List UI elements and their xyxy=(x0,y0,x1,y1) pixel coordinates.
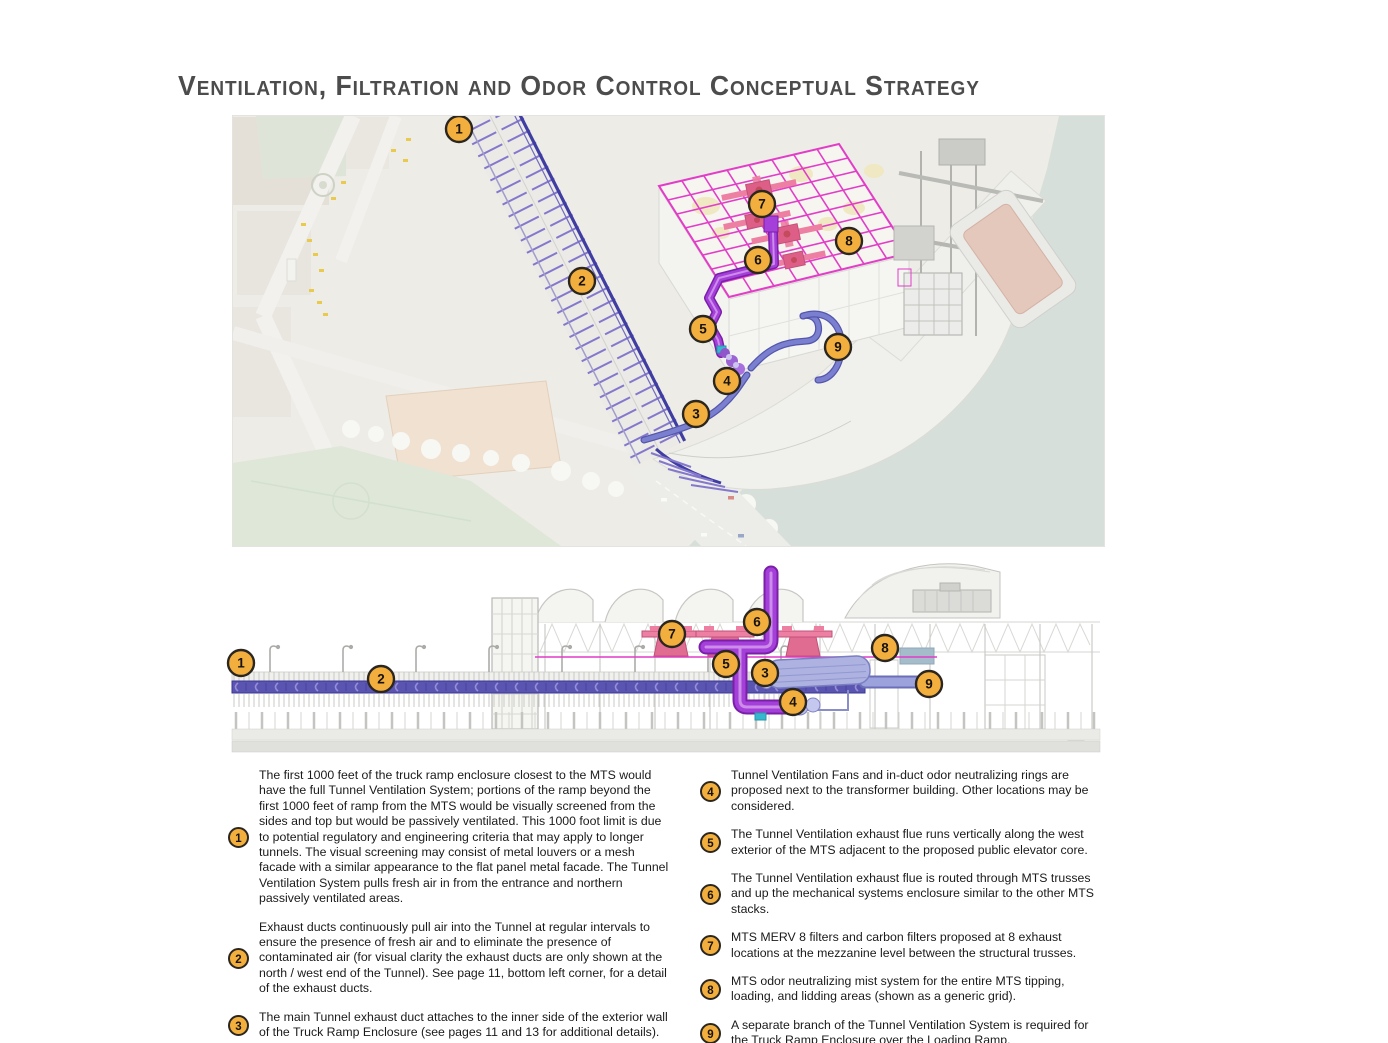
svg-text:6: 6 xyxy=(753,615,761,630)
roof-stack xyxy=(764,216,778,232)
note-4-badge: 4 xyxy=(700,781,721,802)
note-9-text: A separate branch of the Tunnel Ventilat… xyxy=(731,1018,1103,1043)
elevation-figure: 1 2 7 6 5 3 8 4 9 xyxy=(225,558,1110,758)
svg-text:3: 3 xyxy=(692,407,700,422)
notes-left-column: 1 The first 1000 feet of the truck ramp … xyxy=(228,768,680,1043)
note-4-text: Tunnel Ventilation Fans and in-duct odor… xyxy=(731,768,1103,814)
svg-text:9: 9 xyxy=(834,340,842,355)
note-6-text: The Tunnel Ventilation exhaust flue is r… xyxy=(731,871,1103,917)
svg-text:2: 2 xyxy=(578,274,586,289)
elev-callout-5: 5 xyxy=(713,651,739,677)
note-1-badge: 1 xyxy=(228,827,249,848)
note-5-text: The Tunnel Ventilation exhaust flue runs… xyxy=(731,827,1103,858)
svg-text:8: 8 xyxy=(881,641,889,656)
svg-text:7: 7 xyxy=(668,627,676,642)
page-title: Ventilation, Filtration and Odor Control… xyxy=(178,70,980,102)
plan-callout-6: 6 xyxy=(745,247,771,273)
bus xyxy=(287,259,296,281)
svg-text:4: 4 xyxy=(789,695,797,710)
note-item-2: 2 Exhaust ducts continuously pull air in… xyxy=(228,920,680,997)
note-2-text: Exhaust ducts continuously pull air into… xyxy=(259,920,669,997)
elevator-core-tower xyxy=(492,598,538,729)
note-2-badge: 2 xyxy=(228,948,249,969)
elevation-drawing: 1 2 7 6 5 3 8 4 9 xyxy=(225,558,1110,758)
plan-view-drawing: 1 2 3 4 5 6 7 8 9 xyxy=(233,116,1104,546)
note-6-badge: 6 xyxy=(700,884,721,905)
note-item-9: 9 A separate branch of the Tunnel Ventil… xyxy=(700,1018,1112,1043)
note-8-badge: 8 xyxy=(700,979,721,1000)
note-item-7: 7 MTS MERV 8 filters and carbon filters … xyxy=(700,930,1112,961)
notes-right-column: 4 Tunnel Ventilation Fans and in-duct od… xyxy=(700,768,1112,1043)
elev-callout-9: 9 xyxy=(916,671,942,697)
transformer-box xyxy=(900,648,934,664)
note-3-text: The main Tunnel exhaust duct attaches to… xyxy=(259,1010,669,1041)
note-3-badge: 3 xyxy=(228,1015,249,1036)
note-8-text: MTS odor neutralizing mist system for th… xyxy=(731,974,1103,1005)
plan-callout-2: 2 xyxy=(569,268,595,294)
note-item-6: 6 The Tunnel Ventilation exhaust flue is… xyxy=(700,871,1112,917)
plan-callout-3: 3 xyxy=(683,401,709,427)
svg-text:6: 6 xyxy=(754,253,762,268)
elev-callout-6: 6 xyxy=(744,609,770,635)
plan-callout-8: 8 xyxy=(836,228,862,254)
svg-text:7: 7 xyxy=(758,197,766,212)
plan-callout-4: 4 xyxy=(714,368,740,394)
note-item-3: 3 The main Tunnel exhaust duct attaches … xyxy=(228,1010,680,1041)
note-7-badge: 7 xyxy=(700,935,721,956)
elev-callout-1: 1 xyxy=(228,650,254,676)
note-item-8: 8 MTS odor neutralizing mist system for … xyxy=(700,974,1112,1005)
plan-view-figure: 1 2 3 4 5 6 7 8 9 xyxy=(232,115,1105,547)
svg-text:8: 8 xyxy=(845,234,853,249)
note-7-text: MTS MERV 8 filters and carbon filters pr… xyxy=(731,930,1103,961)
svg-text:5: 5 xyxy=(722,657,730,672)
note-item-5: 5 The Tunnel Ventilation exhaust flue ru… xyxy=(700,827,1112,858)
note-item-4: 4 Tunnel Ventilation Fans and in-duct od… xyxy=(700,768,1112,814)
svg-text:5: 5 xyxy=(699,322,707,337)
svg-text:2: 2 xyxy=(377,672,385,687)
svg-text:3: 3 xyxy=(761,666,769,681)
plan-callout-9: 9 xyxy=(825,334,851,360)
note-9-badge: 9 xyxy=(700,1023,721,1043)
note-5-badge: 5 xyxy=(700,832,721,853)
note-1-text: The first 1000 feet of the truck ramp en… xyxy=(259,768,669,907)
elev-callout-8: 8 xyxy=(872,635,898,661)
note-item-1: 1 The first 1000 feet of the truck ramp … xyxy=(228,768,680,907)
truck-ramp-elevation xyxy=(232,646,1100,752)
plan-callout-5: 5 xyxy=(690,316,716,342)
svg-text:1: 1 xyxy=(237,656,245,671)
plan-callout-1: 1 xyxy=(446,116,472,142)
svg-text:1: 1 xyxy=(455,122,463,137)
svg-text:4: 4 xyxy=(723,374,731,389)
report-page: Ventilation, Filtration and Odor Control… xyxy=(0,0,1388,1043)
elev-callout-3: 3 xyxy=(752,660,778,686)
svg-text:9: 9 xyxy=(925,677,933,692)
elev-callout-4: 4 xyxy=(780,689,806,715)
elev-callout-7: 7 xyxy=(659,621,685,647)
elev-callout-2: 2 xyxy=(368,666,394,692)
plan-callout-7: 7 xyxy=(749,191,775,217)
